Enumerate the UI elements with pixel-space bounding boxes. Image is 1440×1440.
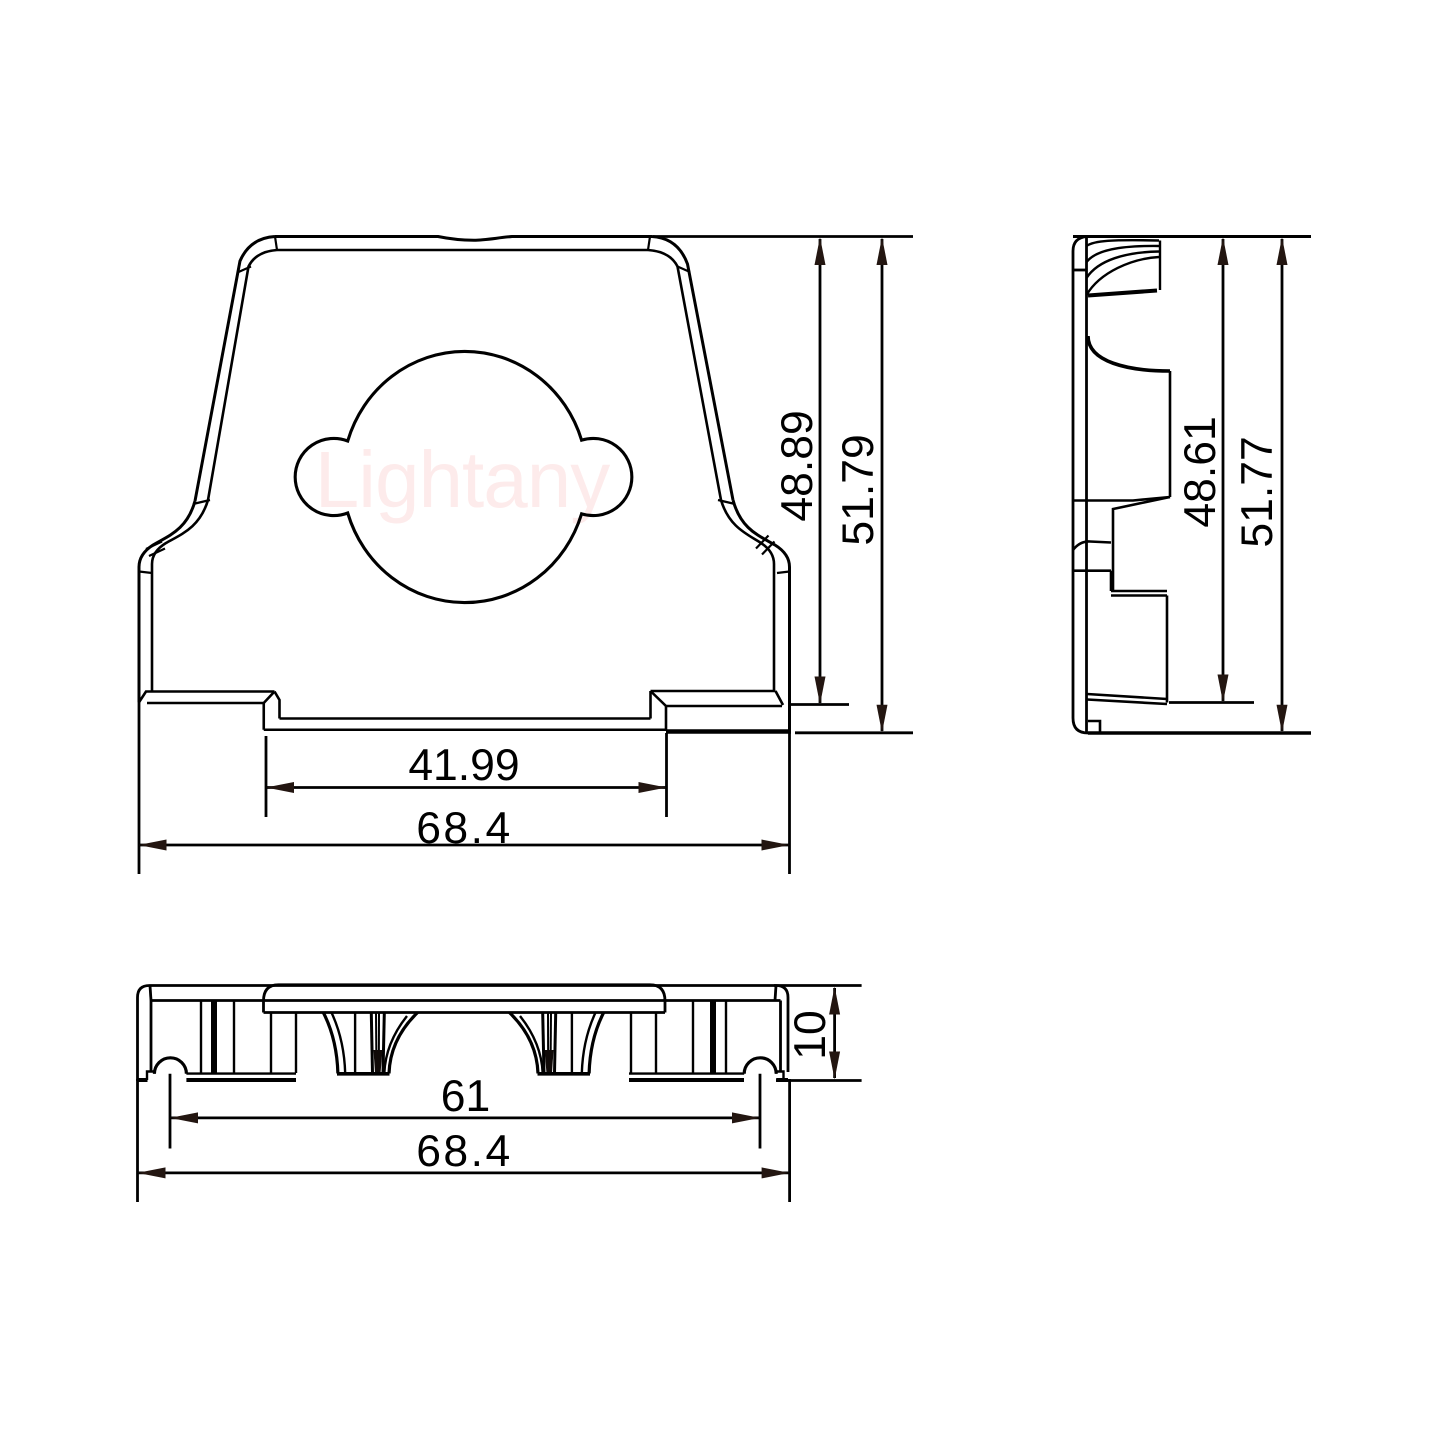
svg-text:10: 10 xyxy=(786,1010,835,1060)
svg-text:41.99: 41.99 xyxy=(408,741,519,790)
svg-text:68.4: 68.4 xyxy=(416,804,513,853)
svg-text:Lightany: Lightany xyxy=(315,435,610,524)
svg-text:48.61: 48.61 xyxy=(1176,416,1225,527)
svg-text:51.77: 51.77 xyxy=(1233,436,1282,547)
svg-text:48.89: 48.89 xyxy=(773,410,822,521)
svg-text:51.79: 51.79 xyxy=(834,434,883,545)
svg-text:68.4: 68.4 xyxy=(416,1127,513,1176)
svg-text:61: 61 xyxy=(441,1072,491,1121)
